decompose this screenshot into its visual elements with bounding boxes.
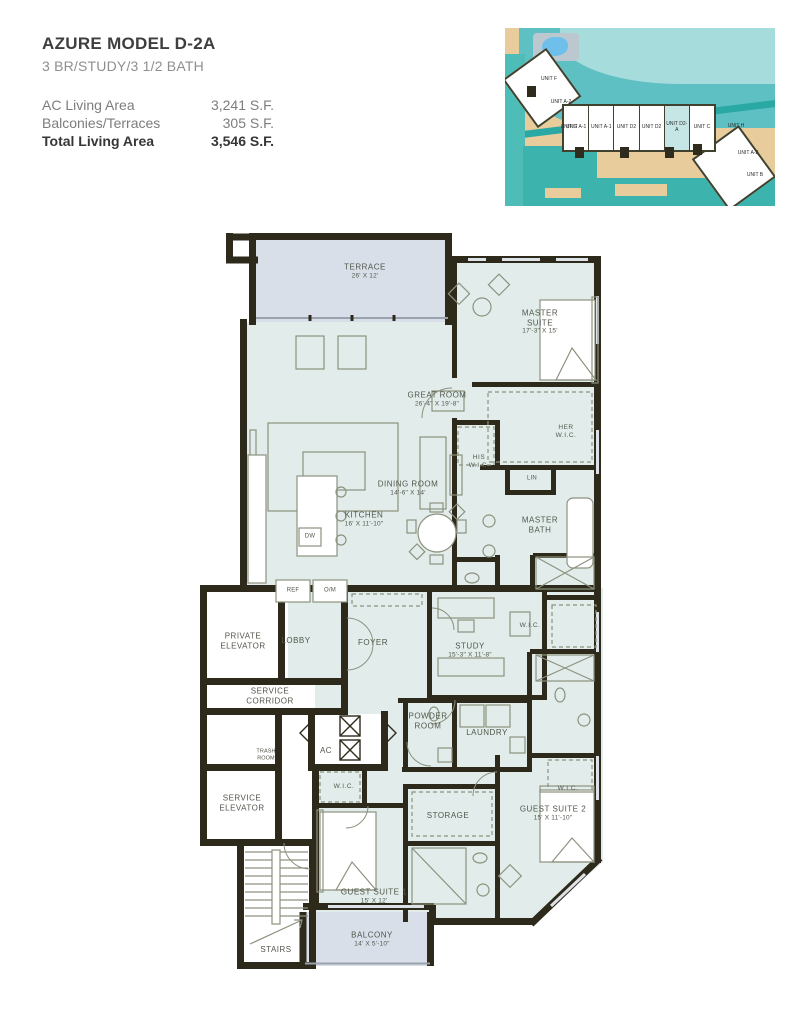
fixture-label-dishwasher: DW bbox=[305, 533, 315, 540]
room-label-his-wic: HIS W.I.C. bbox=[463, 454, 495, 470]
room-label-powder-room: POWDER ROOM bbox=[401, 711, 455, 730]
room-label-stairs: STAIRS bbox=[260, 945, 291, 955]
room-label-her-wic: HER W.I.C. bbox=[550, 424, 582, 440]
room-label-guest-suite-1: GUEST SUITE 115' X 12' bbox=[341, 887, 407, 904]
room-label-guest1-wic: W.I.C. bbox=[334, 783, 355, 791]
fixture-label-ref: REF bbox=[287, 587, 300, 594]
page: AZURE MODEL D-2A 3 BR/STUDY/3 1/2 BATH A… bbox=[0, 0, 801, 1024]
room-label-service-corridor: SERVICE CORRIDOR bbox=[234, 686, 306, 705]
room-label-guest-suite-2: GUEST SUITE 215' X 11'-10" bbox=[520, 804, 586, 821]
room-label-study: STUDY15'-3" X 11'-8" bbox=[448, 641, 492, 658]
floorplan-drawing bbox=[0, 0, 801, 1024]
room-label-guest2-wic: W.I.C. bbox=[558, 785, 579, 793]
room-label-dining-room: DINING ROOM14'-6" X 14' bbox=[378, 479, 439, 496]
room-label-lobby: LOBBY bbox=[281, 636, 310, 646]
room-label-linen: LIN bbox=[527, 475, 537, 482]
room-label-storage: STORAGE bbox=[427, 811, 469, 821]
room-label-terrace: TERRACE26' X 12' bbox=[344, 262, 386, 279]
fixture-label-oven-microwave: O/M bbox=[324, 587, 336, 594]
room-label-great-room: GREAT ROOM26'-4" X 19'-8" bbox=[408, 390, 467, 407]
room-label-balcony: BALCONY14' X 5'-10" bbox=[351, 930, 393, 947]
room-label-laundry: LAUNDRY bbox=[466, 728, 508, 738]
room-label-trash-room: TRASH ROOM bbox=[248, 748, 284, 761]
room-label-master-bath: MASTER BATH bbox=[514, 515, 566, 534]
room-label-study-wic: W.I.C. bbox=[520, 622, 541, 630]
room-label-ac: AC bbox=[320, 746, 332, 756]
room-label-foyer: FOYER bbox=[358, 638, 388, 648]
room-label-kitchen: KITCHEN16' X 11'-10" bbox=[345, 510, 384, 527]
room-label-service-elevator: SERVICE ELEVATOR bbox=[209, 793, 275, 812]
room-label-private-elevator: PRIVATE ELEVATOR bbox=[212, 631, 274, 650]
room-label-master-suite: MASTER SUITE17'-3" X 15' bbox=[512, 309, 568, 336]
